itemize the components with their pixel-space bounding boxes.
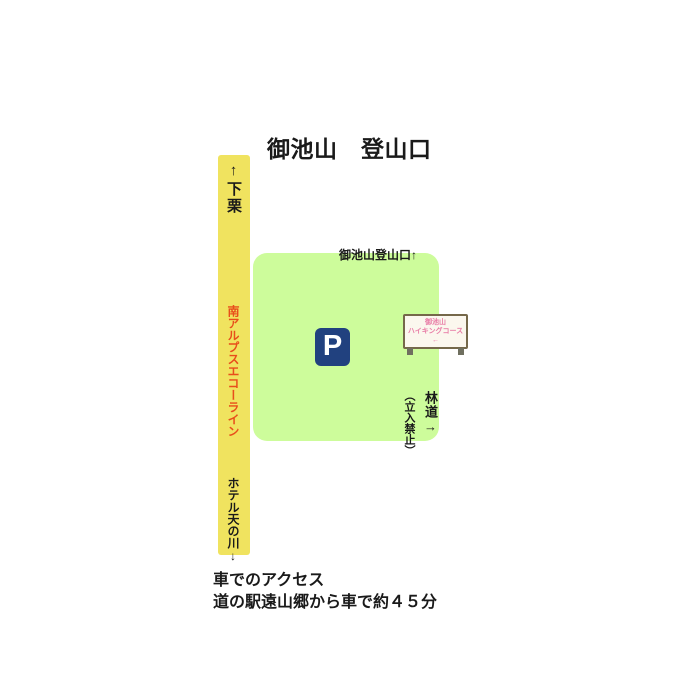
parking-icon: P xyxy=(315,328,350,366)
hiking-course-signboard: 御池山 ハイキングコース ← xyxy=(403,314,468,358)
signboard-face: 御池山 ハイキングコース ← xyxy=(403,314,468,349)
road-name-label: 南アルプスエコーライン xyxy=(227,305,239,437)
trailhead-access-map: 御池山 登山口 ↑下栗 南アルプスエコーライン ホテル天の川↓ 御池山登山口↑ … xyxy=(0,0,700,700)
no-entry-label: （立入禁止） xyxy=(403,390,414,456)
signboard-line2: ハイキングコース xyxy=(408,327,463,336)
signboard-leg-left xyxy=(407,348,413,355)
trailhead-label: 御池山登山口↑ xyxy=(339,246,417,263)
signboard-leg-right xyxy=(458,348,464,355)
road-label-hotel-amanogawa: ホテル天の川↓ xyxy=(227,477,239,563)
forest-road-label: 林道→ xyxy=(424,391,437,435)
signboard-line1: 御池山 xyxy=(425,318,446,327)
road-label-shimoguri: ↑下栗 xyxy=(226,162,241,215)
signboard-arrow-left: ← xyxy=(432,336,439,345)
page-title: 御池山 登山口 xyxy=(267,130,432,164)
access-detail: 道の駅遠山郷から車で約４５分 xyxy=(213,588,437,612)
access-heading: 車でのアクセス xyxy=(213,566,324,590)
parking-letter: P xyxy=(323,332,342,361)
